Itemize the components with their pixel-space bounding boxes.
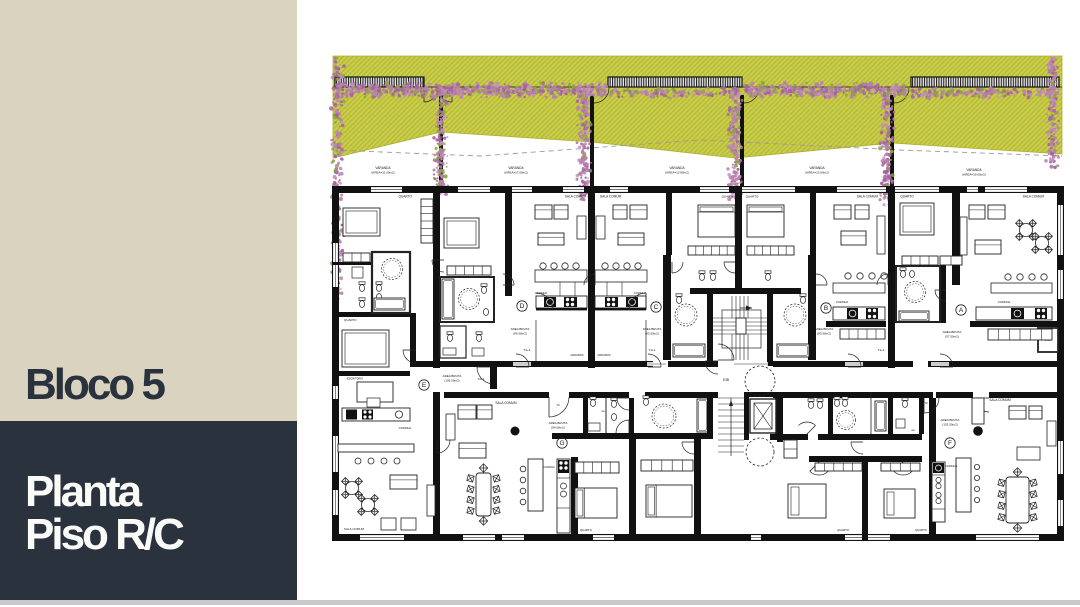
svg-text:AREA BRUTA: AREA BRUTA xyxy=(941,418,960,422)
svg-text:QUARTO: QUARTO xyxy=(344,318,357,322)
svg-text:T1+1: T1+1 xyxy=(878,348,885,352)
svg-text:SALA COMUM: SALA COMUM xyxy=(989,398,1011,402)
svg-text:WB: WB xyxy=(911,430,915,432)
svg-text:(AREA=19.00m2): (AREA=19.00m2) xyxy=(962,173,986,177)
svg-text:(86.50m2): (86.50m2) xyxy=(513,332,527,336)
svg-text:AREA BRUTA: AREA BRUTA xyxy=(549,421,568,425)
svg-text:(AREA=17.00m2): (AREA=17.00m2) xyxy=(504,171,528,175)
svg-text:SALA COMUM: SALA COMUM xyxy=(857,195,879,199)
svg-text:VARANDA: VARANDA xyxy=(669,166,685,170)
svg-text:COZINHA: COZINHA xyxy=(399,426,412,430)
svg-text:(57.50m2): (57.50m2) xyxy=(945,335,959,339)
svg-text:SALA COMUM: SALA COMUM xyxy=(495,401,517,405)
svg-text:AREA BRUTA: AREA BRUTA xyxy=(511,327,530,331)
svg-text:AREA BRUTA: AREA BRUTA xyxy=(815,327,834,331)
svg-text:(83.50m2): (83.50m2) xyxy=(817,332,831,336)
svg-text:(AREA=11.00m2): (AREA=11.00m2) xyxy=(371,171,394,175)
svg-text:VARANDA: VARANDA xyxy=(966,168,982,172)
svg-text:SALA COMUM: SALA COMUM xyxy=(565,195,587,199)
svg-text:B: B xyxy=(824,305,828,312)
svg-text:COZINHA: COZINHA xyxy=(543,465,555,469)
svg-text:COZINHA: COZINHA xyxy=(836,300,849,304)
svg-text:QUARTO: QUARTO xyxy=(398,195,412,199)
svg-text:WB: WB xyxy=(601,411,605,413)
svg-text:(AREA=13.80m2): (AREA=13.80m2) xyxy=(665,171,689,175)
svg-text:VARANDA: VARANDA xyxy=(508,166,524,170)
svg-text:SALA COMUM: SALA COMUM xyxy=(1023,195,1045,199)
svg-text:(94.00m2): (94.00m2) xyxy=(551,426,565,430)
svg-text:SALA COMUM: SALA COMUM xyxy=(344,527,365,531)
svg-text:ARRUMOS: ARRUMOS xyxy=(570,353,584,357)
svg-text:T1+1: T1+1 xyxy=(649,348,656,352)
svg-text:T2: T2 xyxy=(924,401,928,405)
svg-text:QUARTO: QUARTO xyxy=(837,528,850,532)
svg-text:QUARTO: QUARTO xyxy=(722,195,735,199)
svg-text:T2: T2 xyxy=(556,403,560,407)
svg-text:COZINHA: COZINHA xyxy=(945,464,958,468)
svg-text:G: G xyxy=(559,440,564,447)
svg-text:D: D xyxy=(520,303,525,310)
svg-text:(83.50m2): (83.50m2) xyxy=(645,332,659,336)
svg-text:ESCRITORIO: ESCRITORIO xyxy=(347,377,363,381)
svg-text:(103.00m2): (103.00m2) xyxy=(942,423,957,427)
svg-text:(105.00m2): (105.00m2) xyxy=(444,379,459,383)
svg-text:QUARTO: QUARTO xyxy=(915,528,928,532)
svg-text:T1+1: T1+1 xyxy=(524,348,531,352)
svg-text:VARANDA: VARANDA xyxy=(375,166,391,170)
svg-text:AREA BRUTA: AREA BRUTA xyxy=(943,330,962,334)
svg-text:C: C xyxy=(654,304,659,311)
svg-text:AREA BRUTA: AREA BRUTA xyxy=(443,374,462,378)
svg-text:VARANDA: VARANDA xyxy=(809,166,825,170)
svg-text:AREA BRUTA: AREA BRUTA xyxy=(643,327,662,331)
svg-text:(AREA=13.00m2): (AREA=13.00m2) xyxy=(805,171,829,175)
svg-text:QUARTO: QUARTO xyxy=(580,528,593,532)
svg-text:QUARTO: QUARTO xyxy=(900,195,914,199)
svg-text:COZINHA: COZINHA xyxy=(998,300,1011,304)
svg-text:SALA COMUM: SALA COMUM xyxy=(600,195,622,199)
svg-text:ARRUMOS: ARRUMOS xyxy=(597,353,611,357)
svg-text:QUARTO: QUARTO xyxy=(746,195,759,199)
svg-text:F: F xyxy=(948,440,952,447)
svg-text:E: E xyxy=(422,382,427,389)
svg-text:A: A xyxy=(959,307,964,314)
svg-text:E3B: E3B xyxy=(723,378,729,382)
